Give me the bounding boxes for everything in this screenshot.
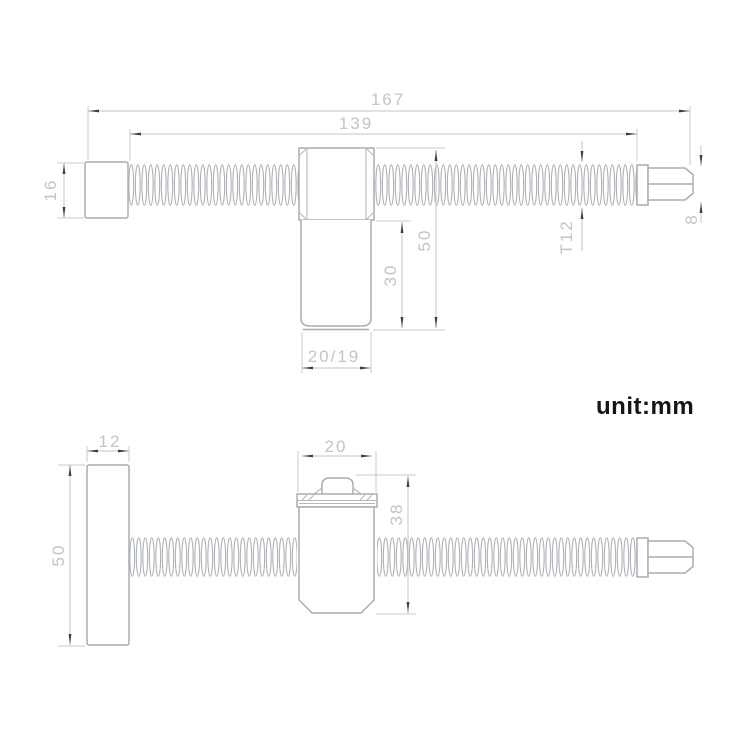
tip-collar-lower bbox=[637, 538, 648, 577]
knob-dome bbox=[314, 478, 361, 494]
end-plate bbox=[87, 465, 129, 645]
dim-thread-length: 139 bbox=[130, 114, 637, 161]
dim-boss-length: 30 bbox=[376, 221, 411, 328]
screw-head bbox=[85, 162, 128, 218]
dim-label-50-lower: 50 bbox=[49, 544, 68, 567]
dim-label-T12: T12 bbox=[557, 219, 576, 254]
dim-label-139: 139 bbox=[339, 114, 373, 133]
dim-label-8: 8 bbox=[682, 213, 701, 224]
slider-block-body bbox=[299, 507, 374, 613]
dim-label-12: 12 bbox=[99, 432, 122, 451]
dim-label-20-19: 20/19 bbox=[308, 347, 361, 366]
dim-head-height: 16 bbox=[41, 163, 84, 218]
dim-label-30: 30 bbox=[381, 264, 400, 287]
dim-label-16: 16 bbox=[41, 179, 60, 202]
technical-drawing: 167 139 16 50 30 bbox=[0, 0, 750, 750]
thread-left-lower bbox=[129, 537, 297, 577]
cap-flange bbox=[297, 494, 377, 507]
dim-plate-height: 50 bbox=[49, 465, 85, 646]
thread-right bbox=[374, 164, 637, 206]
drawing-canvas: 167 139 16 50 30 bbox=[0, 0, 750, 750]
hex-tip bbox=[648, 168, 693, 200]
unit-label: unit:mm bbox=[596, 393, 694, 420]
boss-cylinder bbox=[301, 220, 371, 330]
dim-label-20: 20 bbox=[325, 437, 348, 456]
lower-view: 12 50 20 38 bbox=[49, 432, 693, 646]
dim-plate-thickness: 12 bbox=[87, 432, 129, 462]
dim-label-50-upper: 50 bbox=[415, 229, 434, 252]
thread-left bbox=[128, 164, 299, 206]
hex-tip-lower bbox=[648, 541, 693, 573]
upper-view: 167 139 16 50 30 bbox=[41, 90, 701, 373]
carriage-block bbox=[299, 148, 374, 220]
thread-right-lower bbox=[377, 537, 637, 577]
dim-label-167: 167 bbox=[371, 90, 405, 109]
dim-boss-diameter: 20/19 bbox=[302, 332, 371, 373]
tip-collar bbox=[637, 165, 648, 205]
dim-overall-length: 167 bbox=[88, 90, 690, 165]
dim-label-38: 38 bbox=[387, 503, 406, 526]
